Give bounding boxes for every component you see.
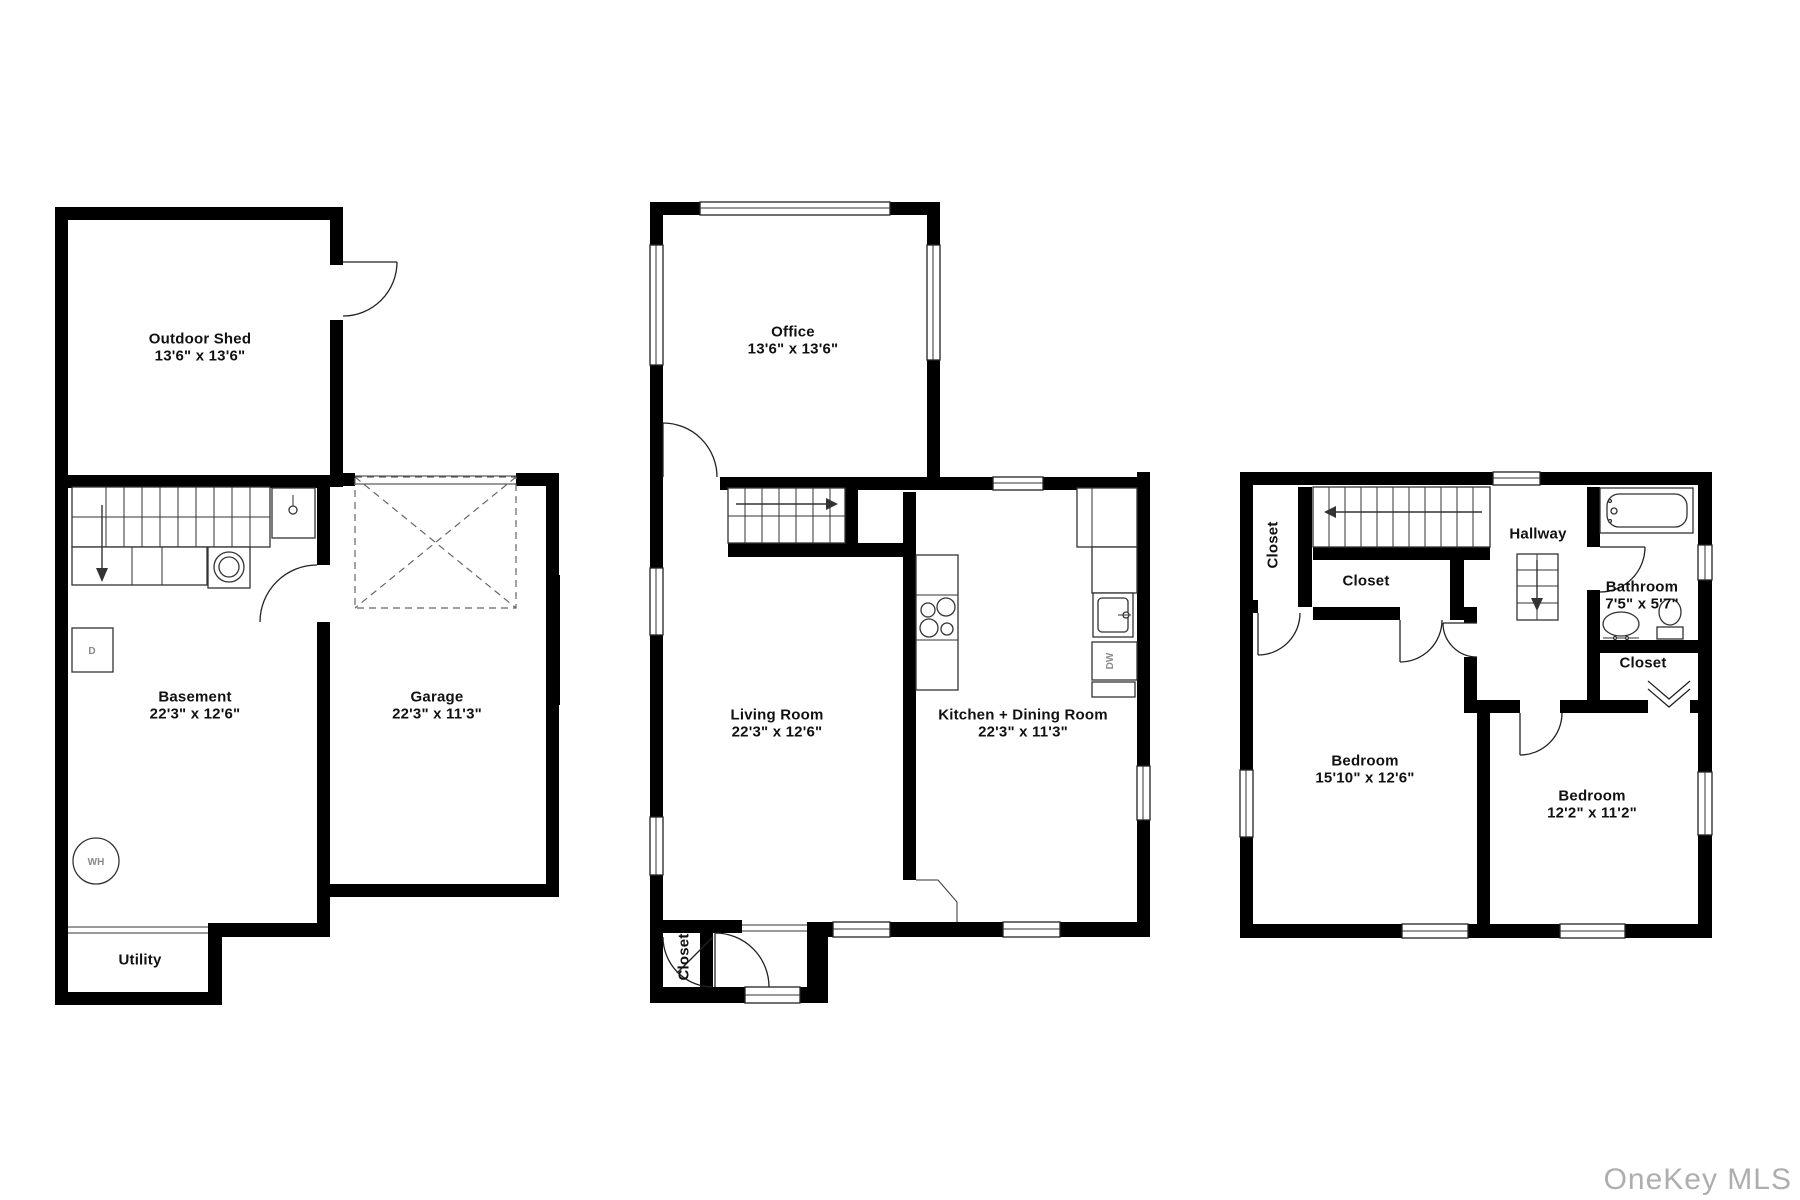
room-label-closet-hall: Closet [1342,572,1389,589]
room-name: Closet [1619,654,1666,671]
room-label-closet-right: Closet [1619,654,1666,671]
kitchen-sink [1093,593,1133,637]
bathroom-sink [1603,612,1639,640]
room-name: Outdoor Shed [149,331,251,348]
basement-sink [272,488,315,538]
room-label-living-room: Living Room 22'3" x 12'6" [730,707,823,742]
kitchen-counters-right: DW [1077,488,1137,697]
room-name: Basement [150,689,241,706]
basement-door [260,565,317,622]
basement-walls [55,207,559,1005]
room-label-kitchen-dining: Kitchen + Dining Room 22'3" x 11'3" [938,707,1108,742]
hallway-stairs-down [1517,554,1558,620]
room-name: Closet [675,933,692,980]
room-name: Kitchen + Dining Room [938,707,1108,724]
room-name: Garage [392,689,482,706]
room-dims: 22'3" x 12'6" [730,724,823,741]
basement-plan: D WH [55,207,559,1005]
room-label-office: Office 13'6" x 13'6" [748,324,839,359]
first-floor-stairs [728,488,845,543]
dryer: D [72,628,113,672]
room-label-hallway: Hallway [1509,525,1566,542]
room-name: Bedroom [1547,788,1637,805]
dryer-label: D [88,646,95,657]
room-label-utility: Utility [118,951,161,968]
first-floor-plan: DW [546,202,1150,1003]
room-name: Closet [1264,521,1281,568]
bedroom-primary-door [1443,623,1477,657]
room-name: Bathroom [1605,579,1679,596]
closet-hall-door [1400,620,1442,662]
first-floor-windows [650,202,1150,1003]
room-dims: 22'3" x 12'6" [150,706,241,723]
room-dims: 13'6" x 13'6" [149,348,251,365]
room-label-basement: Basement 22'3" x 12'6" [150,689,241,724]
water-heater-label: WH [88,857,105,868]
first-floor-walls [546,202,1150,1003]
office-door [663,423,717,477]
bathtub [1600,488,1693,533]
second-floor-stairs [1313,487,1490,547]
onekey-mls-watermark: OneKey MLS [1604,1163,1792,1197]
room-name: Office [748,324,839,341]
room-name: Hallway [1509,525,1566,542]
room-label-closet-left: Closet [1264,521,1281,568]
room-label-bedroom-primary: Bedroom 15'10" x 12'6" [1315,753,1414,788]
utility-opening [68,927,208,933]
kitchen-counters-left [916,555,958,690]
washer [208,547,250,588]
refrigerator [1077,488,1137,547]
room-label-bedroom-second: Bedroom 12'2" x 11'2" [1547,788,1637,823]
bedroom-second-door [1520,713,1562,755]
floorplan-sheet: D WH [0,0,1800,1200]
water-heater: WH [73,838,119,884]
closet-right-bifold-door [1648,681,1690,707]
room-dims: 22'3" x 11'3" [938,724,1108,741]
dining-chamfer [916,880,957,922]
room-dims: 13'6" x 13'6" [748,341,839,358]
room-dims: 15'10" x 12'6" [1315,770,1414,787]
room-dims: 22'3" x 11'3" [392,706,482,723]
room-dims: 7'5" x 5'7" [1605,596,1679,613]
second-floor-plan [1240,472,1712,938]
room-label-entry-closet: Closet [675,933,692,980]
room-label-bathroom: Bathroom 7'5" x 5'7" [1605,579,1679,614]
room-name: Utility [118,951,161,968]
room-name: Bedroom [1315,753,1414,770]
room-dims: 12'2" x 11'2" [1547,805,1637,822]
closet-left-door [1258,613,1300,655]
dishwasher-label: DW [1105,652,1116,669]
floorplan-graphics: D WH [0,0,1800,1200]
room-name: Living Room [730,707,823,724]
dishwasher: DW [1092,642,1137,680]
room-label-garage: Garage 22'3" x 11'3" [392,689,482,724]
room-name: Closet [1342,572,1389,589]
garage-ceiling-x [355,477,516,608]
room-label-outdoor-shed: Outdoor Shed 13'6" x 13'6" [149,331,251,366]
chimney [546,575,560,705]
shed-door [343,262,397,316]
